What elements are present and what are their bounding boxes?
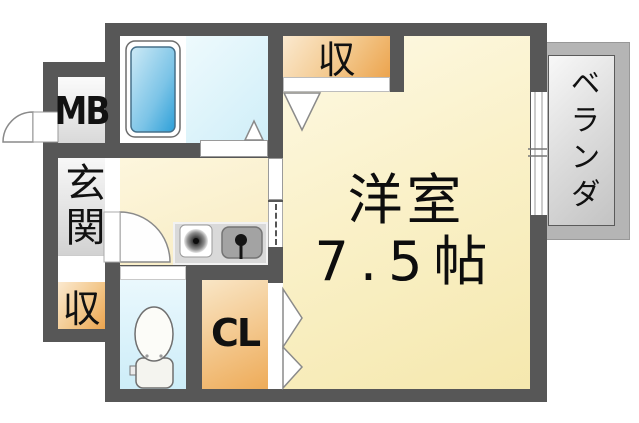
label-meter-box: MB bbox=[58, 72, 105, 148]
label-closet: CL bbox=[202, 300, 268, 366]
label-balcony: ベランダ bbox=[548, 55, 615, 226]
label-storage-entry: 収 bbox=[58, 282, 105, 329]
bathroom-door-triangle bbox=[245, 121, 263, 140]
toilet-hinge-left bbox=[145, 354, 148, 357]
main-room-name: 洋室 bbox=[347, 170, 465, 230]
storage-door-triangle bbox=[284, 93, 320, 130]
sink-faucet bbox=[235, 234, 247, 246]
main-room-label: 洋室 7.5帖 bbox=[283, 170, 530, 310]
stove-burner-center bbox=[193, 238, 199, 244]
bathtub-basin bbox=[131, 47, 175, 132]
kitchen-door-swing bbox=[120, 212, 170, 262]
toilet-tank bbox=[136, 358, 173, 388]
closet-door-triangle-bottom bbox=[283, 347, 302, 388]
entrance-door-swing bbox=[3, 112, 33, 142]
label-storage-top: 収 bbox=[283, 34, 390, 78]
floorplan: MB 玄関 収 収 CL ベランダ 洋室 7.5帖 bbox=[0, 0, 639, 423]
toilet-hinge-right bbox=[159, 354, 162, 357]
toilet-bowl bbox=[135, 307, 173, 361]
main-room-size: 7.5帖 bbox=[315, 232, 499, 292]
label-entrance: 玄関 bbox=[58, 156, 105, 256]
